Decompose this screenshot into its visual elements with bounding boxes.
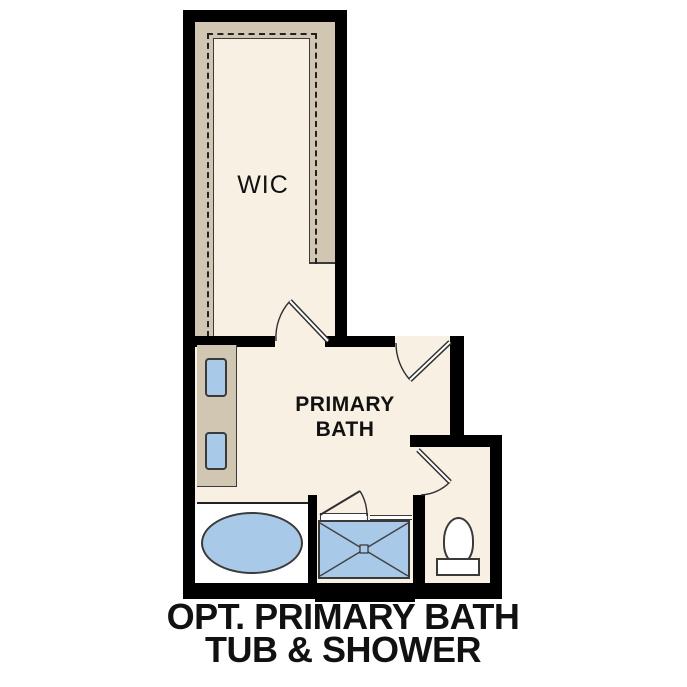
floor-plan-page: { "caption": { "line1": "OPT. PRIMARY BA… <box>0 0 687 687</box>
shower-door-icon <box>320 491 367 516</box>
bath-entry-door-icon <box>396 342 450 380</box>
plan-caption: OPT. PRIMARY BATH TUB & SHOWER <box>93 600 593 666</box>
wic-room-label: WIC <box>203 171 323 200</box>
toilet-door-icon <box>418 450 450 495</box>
caption-line2: TUB & SHOWER <box>93 633 593 666</box>
primary-bath-label-line1: PRIMARY <box>265 392 425 417</box>
primary-bath-room-label: PRIMARY BATH <box>265 392 425 442</box>
primary-bath-label-line2: BATH <box>265 417 425 442</box>
wic-door-icon <box>276 301 328 341</box>
shower-drain <box>360 545 368 553</box>
door-swing-overlay <box>0 0 687 687</box>
